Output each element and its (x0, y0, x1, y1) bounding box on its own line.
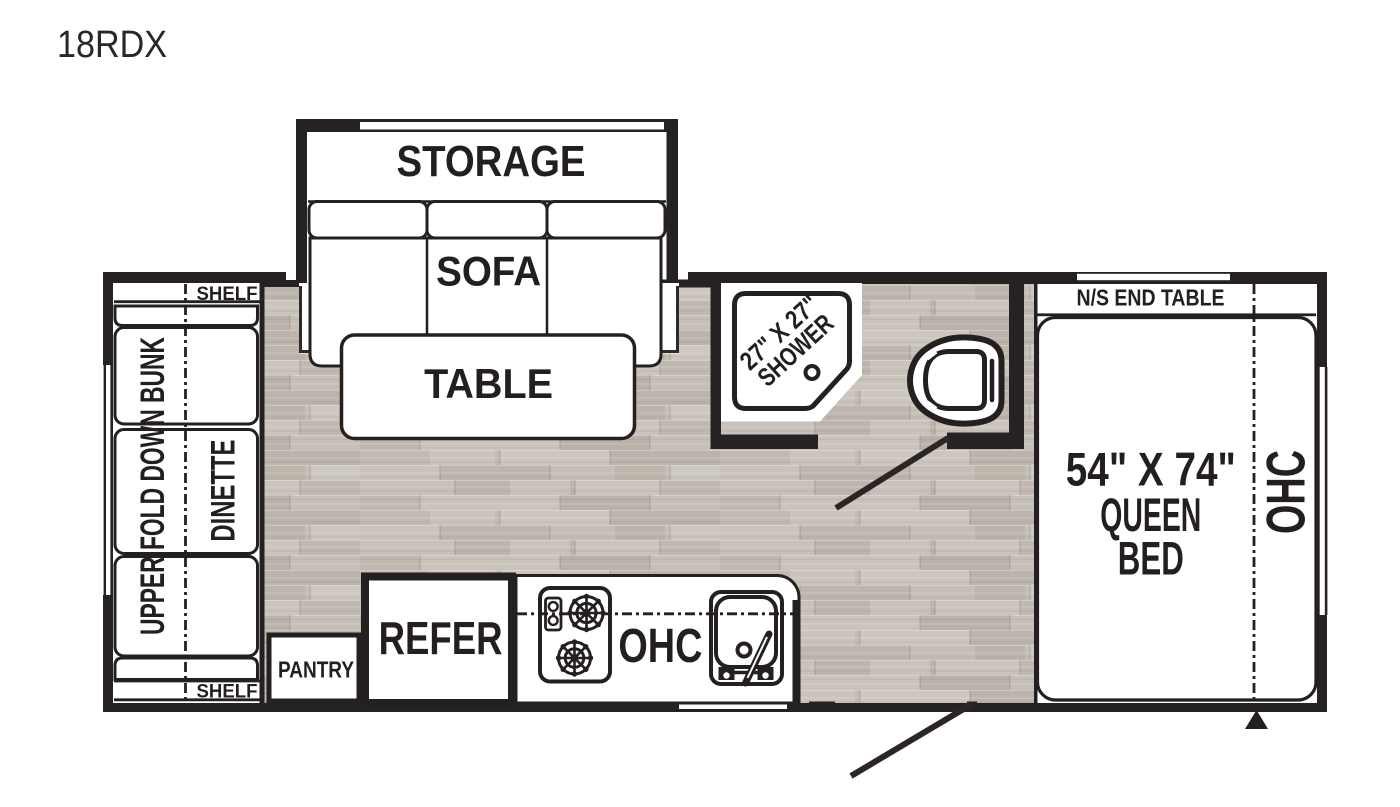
svg-text:REFER: REFER (379, 612, 503, 664)
svg-text:STORAGE: STORAGE (397, 138, 586, 186)
svg-text:SHELF: SHELF (197, 681, 258, 703)
svg-text:PANTRY: PANTRY (278, 657, 354, 683)
svg-text:UPPER FOLD DOWN BUNK: UPPER FOLD DOWN BUNK (134, 337, 172, 635)
svg-text:18RDX: 18RDX (57, 24, 167, 66)
svg-text:BED: BED (1118, 532, 1184, 585)
svg-text:DINETTE: DINETTE (205, 440, 243, 542)
svg-text:SHELF: SHELF (197, 283, 258, 305)
svg-text:N/S END TABLE: N/S END TABLE (1077, 285, 1225, 311)
svg-text:OHC: OHC (618, 620, 702, 673)
svg-text:TABLE: TABLE (424, 360, 553, 407)
svg-text:OHC: OHC (1255, 450, 1317, 534)
svg-text:SOFA: SOFA (436, 248, 541, 295)
